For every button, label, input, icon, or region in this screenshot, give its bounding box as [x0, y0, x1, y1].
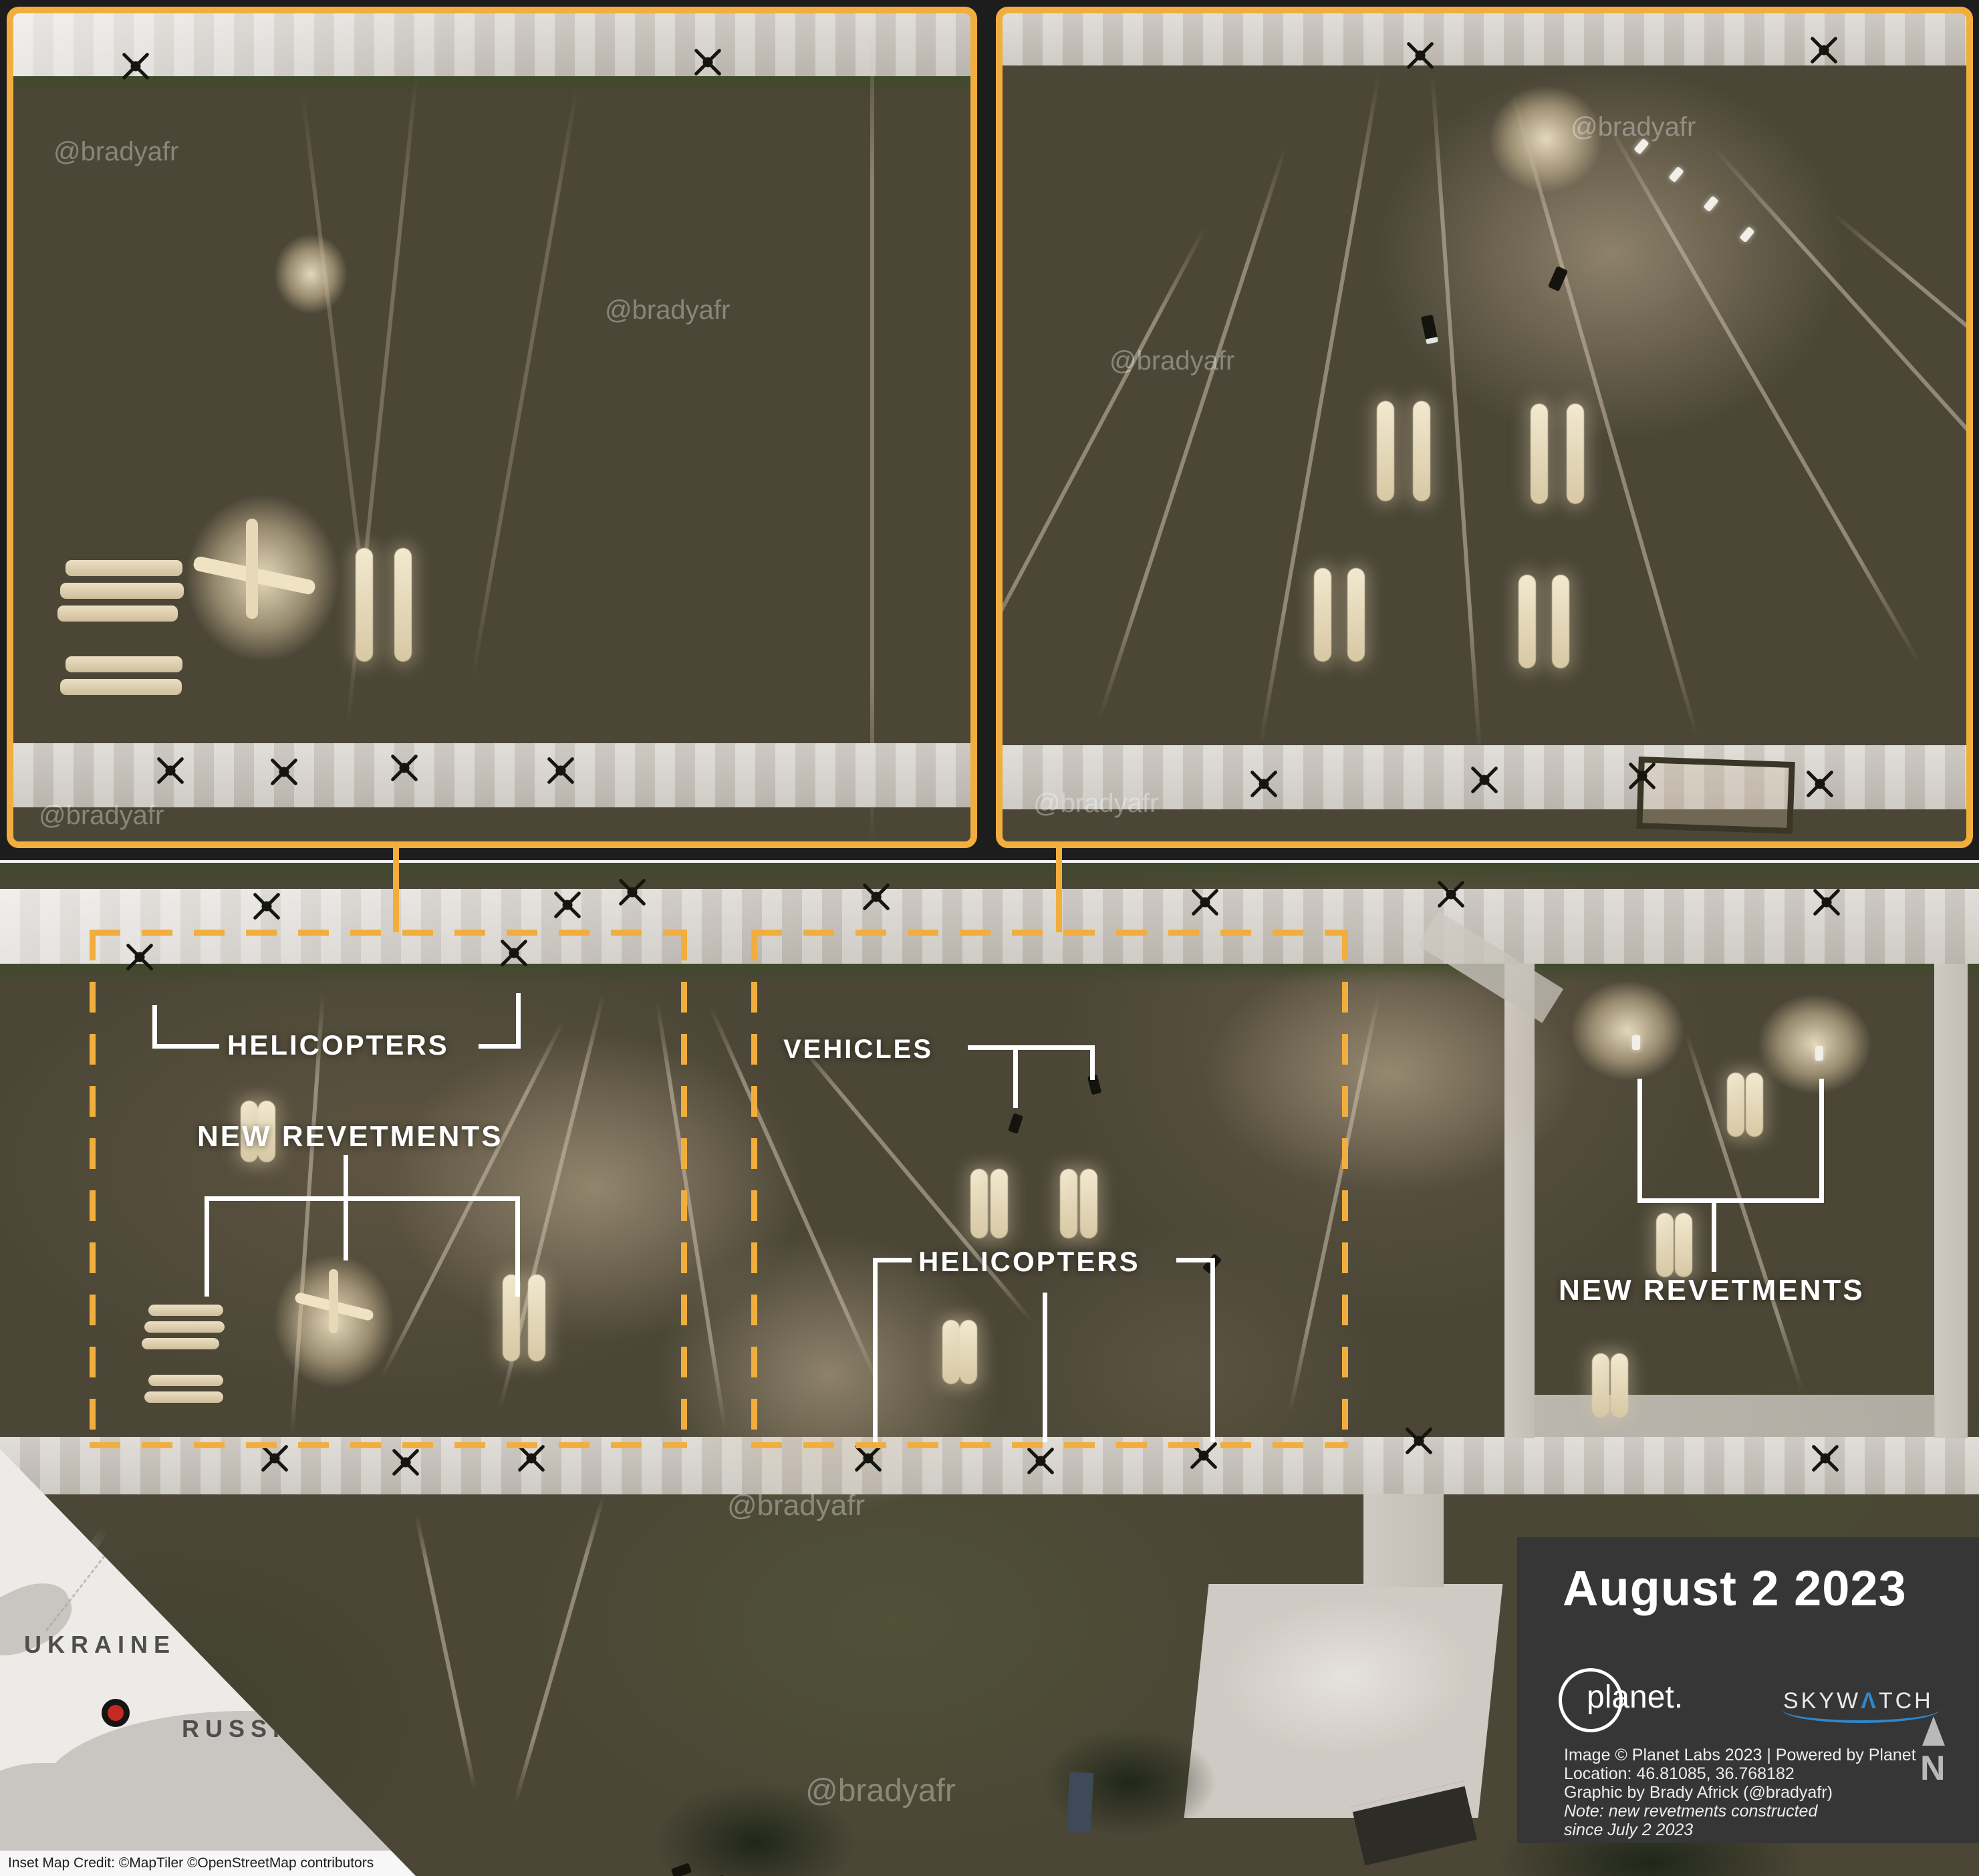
watermark: @bradyafr — [805, 1772, 956, 1809]
callout-line — [516, 993, 521, 1049]
revetment-logs — [144, 1391, 223, 1403]
zoom-inset-panel-left: @bradyafr @bradyafr @bradyafr — [7, 7, 977, 848]
skywatch-swoosh-icon — [1782, 1696, 1940, 1723]
helicopter — [1807, 1440, 1843, 1476]
revetment-logs — [60, 679, 182, 695]
revetment-pair — [1314, 568, 1365, 662]
helicopter — [1620, 754, 1664, 798]
note-line: Note: new revetments constructed — [1564, 1802, 1817, 1821]
callout-line — [873, 1258, 878, 1442]
label-new-revetments-left: NEW REVETMENTS — [197, 1120, 503, 1154]
revetment-pair — [1531, 404, 1584, 504]
vehicle — [1008, 1113, 1023, 1133]
helicopter — [122, 939, 158, 975]
helicopter — [1462, 758, 1506, 802]
planet-logo: planet. — [1587, 1679, 1683, 1716]
terrain-band — [0, 863, 1979, 890]
revetment-pair — [1377, 401, 1430, 501]
revetment-mound — [1758, 994, 1871, 1094]
callout-line — [1176, 1258, 1215, 1262]
track — [1097, 146, 1287, 720]
helicopter — [148, 749, 192, 793]
helicopter — [382, 746, 426, 790]
revetment-pair — [1060, 1169, 1097, 1238]
revetment-logs — [148, 1305, 223, 1316]
revetment-pair — [356, 548, 412, 662]
track — [870, 13, 874, 841]
revetment-mound — [274, 234, 348, 314]
callout-line — [873, 1258, 912, 1262]
helicopter — [1398, 33, 1442, 78]
revetment-pair — [503, 1275, 545, 1361]
apron-stem — [1363, 1494, 1444, 1587]
label-helicopters-left: HELICOPTERS — [227, 1029, 449, 1061]
country-label-ukraine: UKRAINE — [24, 1631, 176, 1659]
revetment-logs — [148, 1375, 223, 1386]
helicopter — [1433, 876, 1469, 912]
track — [1832, 213, 1973, 517]
credit-line: Image © Planet Labs 2023 | Powered by Pl… — [1564, 1746, 1916, 1764]
revetment-logs — [60, 583, 184, 599]
helicopter — [262, 750, 306, 794]
zoom-inset-panel-right: @bradyafr @bradyafr @bradyafr — [996, 7, 1973, 848]
vehicle-light — [1632, 1035, 1640, 1050]
revetment-pair — [1656, 1213, 1692, 1277]
watermark: @bradyafr — [1109, 346, 1234, 376]
helicopter — [496, 935, 532, 971]
callout-line — [344, 1155, 348, 1198]
callout-line — [1090, 1045, 1095, 1080]
revetment-logs — [57, 606, 178, 622]
callout-line — [152, 1005, 157, 1049]
helicopter — [684, 39, 731, 86]
taxiway-vertical-right — [1934, 964, 1968, 1438]
track — [513, 1494, 606, 1804]
callout-line — [515, 1196, 520, 1297]
north-arrow-icon — [1922, 1716, 1945, 1746]
credit-line: Graphic by Brady Africk (@bradyafr) — [1564, 1783, 1833, 1802]
graphic-canvas: @bradyafr @bradyafr HELICOPTERS NEW REVE… — [0, 0, 1979, 1876]
map-credit-text: Inset Map Credit: ©MapTiler ©OpenStreetM… — [0, 1851, 416, 1876]
watermark: @bradyafr — [53, 137, 178, 167]
callout-line — [152, 1044, 219, 1049]
watermark: @bradyafr — [727, 1489, 865, 1522]
helicopter — [858, 879, 894, 915]
callout-line — [344, 1196, 348, 1260]
helicopter — [1401, 1423, 1437, 1459]
callout-line — [968, 1045, 1095, 1050]
helicopter — [1242, 762, 1286, 806]
credit-line: Location: 46.81085, 36.768182 — [1564, 1764, 1795, 1783]
label-vehicles: VEHICLES — [783, 1035, 933, 1065]
note-line: since July 2 2023 — [1564, 1821, 1693, 1839]
callout-line — [1043, 1293, 1047, 1442]
date-title: August 2 2023 — [1563, 1560, 1907, 1617]
track — [471, 86, 579, 679]
terrain-band — [0, 964, 1979, 984]
dirt-patch — [1203, 954, 1577, 1194]
revetment-pair — [1727, 1073, 1763, 1137]
aircraft-shape — [246, 519, 258, 619]
info-panel: August 2 2023 planet. SKYWΛTCH Image © P… — [1517, 1537, 1979, 1843]
label-helicopters-center: HELICOPTERS — [918, 1246, 1140, 1278]
revetment-pair — [970, 1169, 1008, 1238]
revetment-logs — [144, 1321, 225, 1333]
track — [996, 227, 1207, 677]
track — [414, 1514, 477, 1790]
north-label: N — [1920, 1748, 1946, 1788]
helicopter — [1023, 1443, 1059, 1479]
building-blue — [1067, 1772, 1094, 1833]
callout-line — [205, 1196, 520, 1201]
watermark: @bradyafr — [39, 801, 164, 831]
helicopter — [1798, 762, 1842, 806]
runway-upper — [0, 889, 1979, 964]
aircraft-shape — [329, 1269, 338, 1333]
helicopter — [619, 879, 646, 906]
helicopter — [1809, 884, 1845, 920]
callout-line — [205, 1196, 209, 1297]
watermark: @bradyafr — [1571, 112, 1696, 142]
callout-line — [1819, 1079, 1824, 1203]
inset-connector-left — [393, 848, 399, 932]
callout-line — [1013, 1045, 1018, 1108]
helicopter — [1187, 884, 1223, 920]
helicopter — [249, 888, 285, 924]
inset-connector-right — [1056, 848, 1062, 932]
vehicle-light — [1815, 1046, 1823, 1061]
helicopter — [112, 43, 159, 90]
callout-line — [1210, 1258, 1215, 1442]
watermark: @bradyafr — [1033, 789, 1158, 819]
map-credit-strip: Inset Map Credit: ©MapTiler ©OpenStreetM… — [0, 1851, 416, 1876]
watermark: @bradyafr — [605, 295, 730, 325]
location-marker — [102, 1699, 130, 1727]
callout-line — [1637, 1079, 1642, 1203]
revetment-mound — [1571, 980, 1684, 1081]
revetment-logs — [65, 656, 182, 672]
revetment-pair — [1592, 1353, 1628, 1418]
label-new-revetments-right: NEW REVETMENTS — [1559, 1274, 1865, 1307]
helicopter — [549, 887, 585, 923]
revetment-logs — [65, 560, 182, 576]
revetment-logs — [142, 1338, 219, 1349]
callout-line — [479, 1044, 521, 1049]
callout-line — [1637, 1198, 1824, 1203]
helicopter — [388, 1444, 424, 1480]
helicopter — [1802, 28, 1846, 72]
callout-line — [1712, 1198, 1716, 1272]
revetment-pair — [1519, 575, 1569, 668]
helicopter — [539, 749, 583, 793]
revetment-pair — [942, 1320, 977, 1384]
